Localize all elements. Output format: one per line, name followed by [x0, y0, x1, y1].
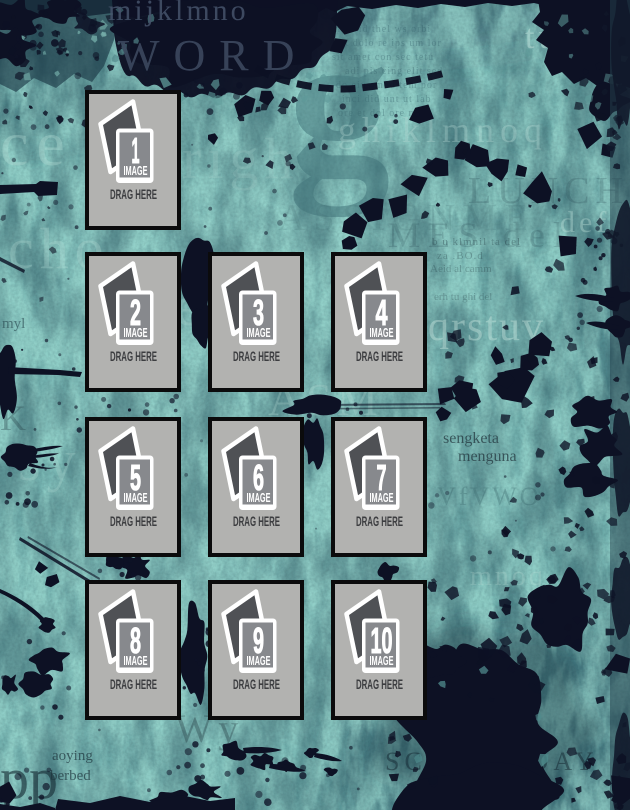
svg-text:IMAGE: IMAGE	[123, 326, 147, 340]
svg-text:DRAG HERE: DRAG HERE	[110, 512, 157, 528]
svg-text:DRAG HERE: DRAG HERE	[110, 676, 157, 692]
svg-text:myl: myl	[2, 316, 25, 332]
svg-text:DRAG HERE: DRAG HERE	[356, 348, 403, 364]
svg-text:DRAG HERE: DRAG HERE	[233, 676, 280, 692]
svg-text:DRAG HERE: DRAG HERE	[110, 186, 157, 202]
svg-text:IMAGE: IMAGE	[370, 326, 394, 340]
svg-text:DRAG HERE: DRAG HERE	[233, 348, 280, 364]
svg-text:righ: righ	[182, 126, 299, 191]
svg-text:erh tu ghi del: erh tu ghi del	[434, 291, 492, 303]
svg-text:VfVWO: VfVWO	[437, 482, 542, 511]
svg-text:IMAGE: IMAGE	[123, 491, 147, 505]
svg-text:et dolo re ips um lor: et dolo re ips um lor	[340, 38, 442, 49]
svg-text:IMAGE: IMAGE	[246, 326, 270, 340]
svg-text:menguna: menguna	[458, 448, 517, 465]
svg-text:qrstuv: qrstuv	[428, 304, 545, 350]
svg-text:IMAGE: IMAGE	[123, 164, 147, 178]
svg-text:WORD: WORD	[118, 31, 308, 80]
svg-text:berbed: berbed	[50, 768, 91, 784]
svg-text:DRAG HERE: DRAG HERE	[356, 676, 403, 692]
svg-text:za .BO.d: za .BO.d	[437, 250, 484, 262]
svg-text:DRAG HERE: DRAG HERE	[110, 348, 157, 364]
svg-text:IMAGE: IMAGE	[246, 654, 270, 668]
svg-text:IMAGE: IMAGE	[370, 654, 394, 668]
svg-text:sit amet con sec tetu: sit amet con sec tetu	[332, 52, 434, 63]
svg-text:DRAG HERE: DRAG HERE	[356, 512, 403, 528]
svg-text:ASSIGNME: ASSIGNME	[278, 197, 536, 239]
svg-text:inci did unt ut lab: inci did unt ut lab	[342, 94, 432, 105]
svg-text:Aeid al camm: Aeid al camm	[430, 263, 492, 275]
svg-text:aoying: aoying	[52, 748, 93, 764]
svg-text:ghiklmnoq: ghiklmnoq	[338, 110, 548, 150]
svg-text:IMAGE: IMAGE	[370, 491, 394, 505]
svg-text:DRAG HERE: DRAG HERE	[233, 512, 280, 528]
svg-text:mijklmno: mijklmno	[108, 0, 249, 27]
svg-text:b u klmnil ta del: b u klmnil ta del	[432, 236, 521, 248]
svg-text:IMAGE: IMAGE	[123, 654, 147, 668]
svg-text:IMAGE: IMAGE	[246, 491, 270, 505]
svg-text:sengketa: sengketa	[443, 430, 499, 447]
